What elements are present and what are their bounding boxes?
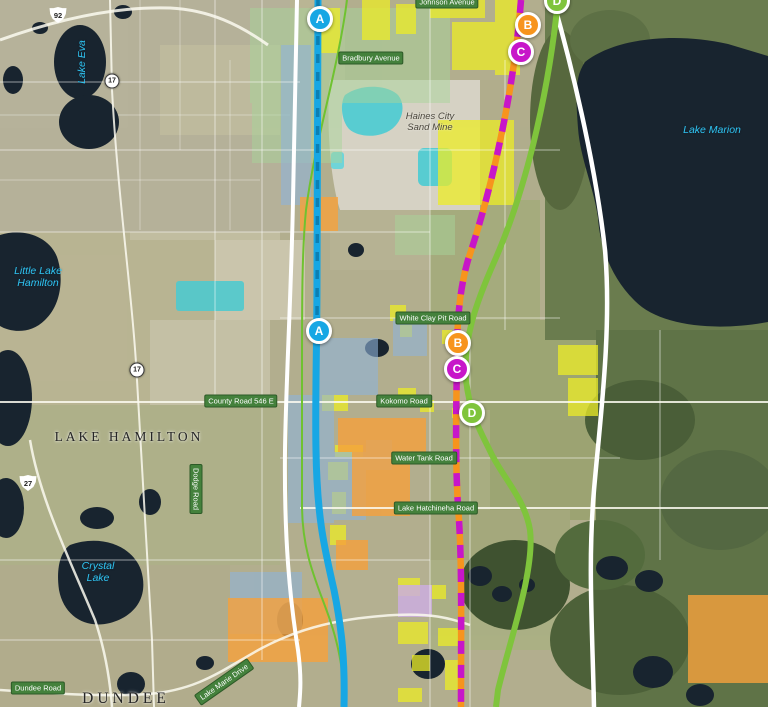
route-a-marker-mid: A (306, 318, 332, 344)
route-c-marker-mid: C (444, 356, 470, 382)
route-d-marker-mid: D (459, 400, 485, 426)
sr-17-shield-north: 17 (105, 74, 120, 89)
route-b-marker-top: B (515, 12, 541, 38)
road-label-lake-hatchineha-road: Lake Hatchineha Road (394, 502, 478, 515)
road-label-white-clay-pit-road: White Clay Pit Road (395, 312, 470, 325)
map-canvas[interactable]: 92 17 17 27 Johnson Avenue Bradbury Aven… (0, 0, 768, 707)
route-b-marker-mid: B (445, 330, 471, 356)
route-a-marker-top: A (307, 6, 333, 32)
road-label-johnson-avenue: Johnson Avenue (415, 0, 478, 9)
route-c-marker-top: C (508, 39, 534, 65)
road-label-dundee-road: Dundee Road (11, 682, 65, 695)
sr-17-shield-south: 17 (130, 363, 145, 378)
road-label-county-road-546: County Road 546 E (204, 395, 277, 408)
satellite-basemap (0, 0, 768, 707)
landuse-purple (398, 585, 432, 617)
road-label-bradbury-avenue: Bradbury Avenue (338, 52, 403, 65)
road-label-water-tank-road: Water Tank Road (391, 452, 457, 465)
road-label-kokomo-road: Kokomo Road (376, 395, 432, 408)
road-label-dodge-road: Dodge Road (190, 464, 203, 514)
